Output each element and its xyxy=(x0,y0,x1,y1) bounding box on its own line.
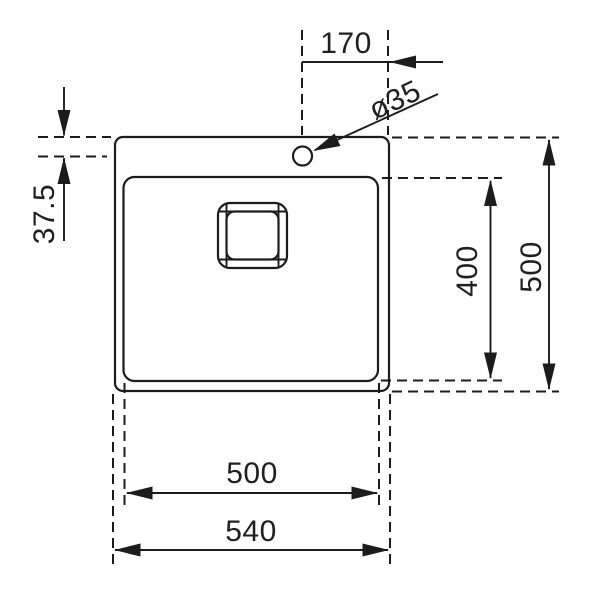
drain-inner-square xyxy=(227,212,279,260)
sink-bowl-edge xyxy=(124,177,379,381)
dim-bowl-depth-400: 400 xyxy=(381,178,502,381)
drain-symbol xyxy=(218,203,287,268)
arrowhead-left xyxy=(390,56,417,69)
dim-hole-offset-170: 170 xyxy=(302,27,443,135)
arrowhead-down xyxy=(58,110,71,136)
dim-label-500-horizontal: 500 xyxy=(226,457,278,490)
dim-label-400: 400 xyxy=(451,245,484,297)
sink-dimension-drawing: 170 ø35 37.5 400 500 xyxy=(0,0,600,600)
dim-hole-top-offset-37-5: 37.5 xyxy=(28,87,111,244)
faucet-hole xyxy=(293,147,312,166)
dim-label-540: 540 xyxy=(225,515,277,548)
arrowhead-right xyxy=(352,487,379,500)
drawing-svg: 170 ø35 37.5 400 500 xyxy=(0,0,600,600)
arrowhead-down xyxy=(484,353,497,380)
dim-hole-diameter: ø35 xyxy=(313,74,438,151)
arrowhead-down xyxy=(543,364,556,391)
arrowhead-left xyxy=(114,544,141,557)
arrowhead-up xyxy=(543,139,556,166)
dim-label-500-vertical: 500 xyxy=(515,241,548,293)
dim-bowl-width-500: 500 xyxy=(125,383,380,506)
drain-outer-frame xyxy=(218,203,287,268)
arrowhead-left xyxy=(126,487,153,500)
dim-label-diameter: ø35 xyxy=(364,74,426,126)
arrowhead-up xyxy=(484,180,497,207)
dim-label-170: 170 xyxy=(320,27,372,60)
arrowhead-up xyxy=(58,158,71,185)
dim-label-37-5: 37.5 xyxy=(28,184,61,244)
arrowhead-right xyxy=(363,544,390,557)
sink-outline xyxy=(115,137,389,391)
sink-outer-edge xyxy=(115,137,389,391)
